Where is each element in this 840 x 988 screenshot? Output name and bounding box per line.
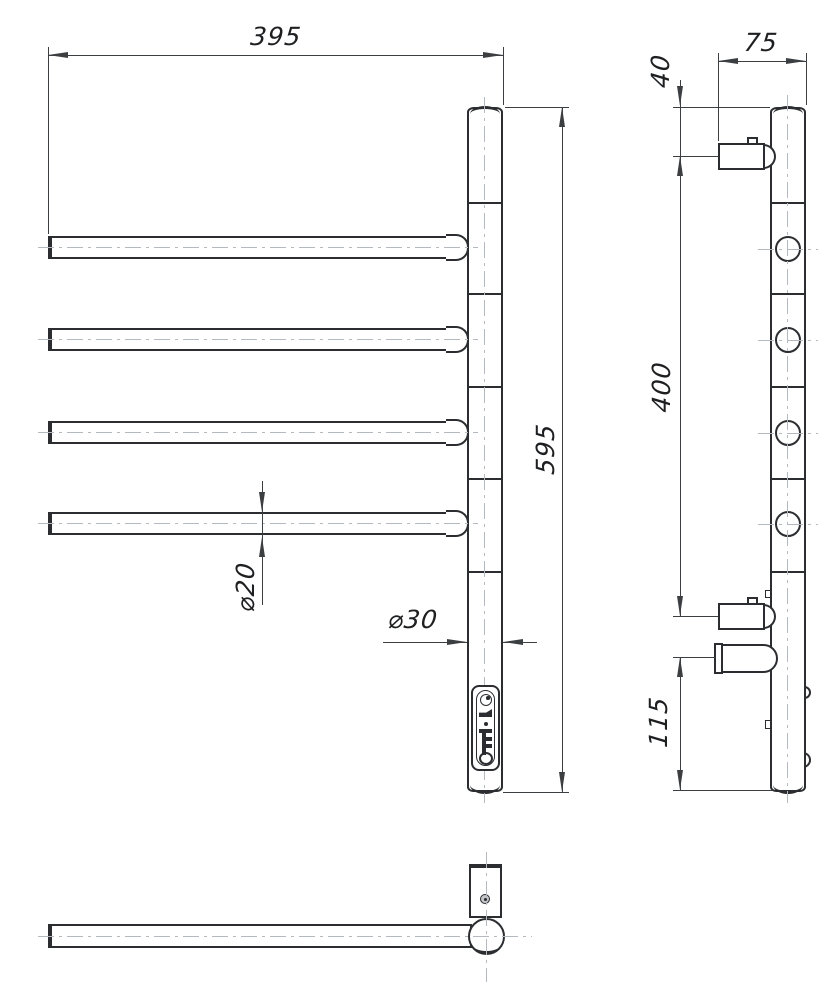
joint-line <box>770 478 806 480</box>
wall-bracket-bottom <box>718 603 765 630</box>
center-line <box>38 432 478 433</box>
arrowhead-icon <box>483 52 503 58</box>
extension-line <box>673 616 718 617</box>
center-line <box>38 339 478 340</box>
logo-key-tooth-icon <box>486 744 492 748</box>
arrowhead-icon <box>677 156 683 176</box>
arrowhead-icon <box>559 107 565 127</box>
center-line <box>758 249 818 250</box>
joint-line <box>467 571 503 573</box>
logo-key-bow-icon <box>479 752 493 765</box>
arrowhead-icon <box>677 86 683 106</box>
dim-top-offset-label: 40 <box>648 45 674 98</box>
dim-arm-diameter-label: ⌀20 <box>233 551 259 624</box>
joint-line <box>467 202 503 204</box>
dim-bracket-span-label: 400 <box>649 351 675 424</box>
arrowhead-icon <box>677 596 683 616</box>
arrowhead-icon <box>677 770 683 790</box>
wall-bracket-top <box>718 143 765 170</box>
dimension-line <box>48 55 503 56</box>
extension-line <box>806 53 807 105</box>
joint-line <box>467 293 503 295</box>
joint-line <box>770 386 806 388</box>
center-line <box>486 852 487 982</box>
extension-line <box>718 53 719 141</box>
extension-line <box>503 47 504 105</box>
heated-post-side <box>770 107 806 792</box>
power-unit-lip <box>714 643 723 674</box>
joint-line <box>467 478 503 480</box>
arrowhead-icon <box>259 537 265 557</box>
arrowhead-icon <box>503 639 523 645</box>
joint-line <box>770 202 806 204</box>
logo-dot-icon <box>486 696 490 700</box>
center-line <box>38 936 532 937</box>
arrowhead-icon <box>447 639 467 645</box>
joint-line <box>770 293 806 295</box>
center-line <box>758 524 818 525</box>
center-line <box>758 433 818 434</box>
joint-line <box>467 386 503 388</box>
joint-line <box>770 571 806 573</box>
logo-dot-icon <box>484 722 488 726</box>
extension-line <box>503 792 569 793</box>
extension-line <box>48 47 49 234</box>
arrowhead-icon <box>718 58 738 64</box>
arrowhead-icon <box>559 772 565 792</box>
dim-width-label: 395 <box>235 24 318 50</box>
dim-post-diameter-label: ⌀30 <box>372 607 455 633</box>
arrowhead-icon <box>786 58 806 64</box>
post-bottom-cap <box>470 785 500 794</box>
center-line <box>38 247 478 248</box>
extension-line <box>673 790 773 791</box>
arrowhead-icon <box>48 52 68 58</box>
arrowhead-icon <box>259 492 265 512</box>
dim-depth-label: 75 <box>735 30 788 56</box>
logo-key-tooth-icon <box>486 737 492 741</box>
dim-bottom-offset-label: 115 <box>646 690 672 755</box>
center-line <box>787 95 788 803</box>
dim-height-label: 595 <box>533 418 559 481</box>
post-bottom-cap <box>773 785 803 794</box>
power-unit-housing <box>719 644 778 673</box>
dimension-line <box>562 107 563 792</box>
technical-drawing-canvas: 395 595 ⌀20 ⌀30 <box>0 0 840 988</box>
arrowhead-icon <box>677 657 683 677</box>
center-line <box>758 340 818 341</box>
extension-line <box>673 107 770 108</box>
center-line <box>38 523 478 524</box>
